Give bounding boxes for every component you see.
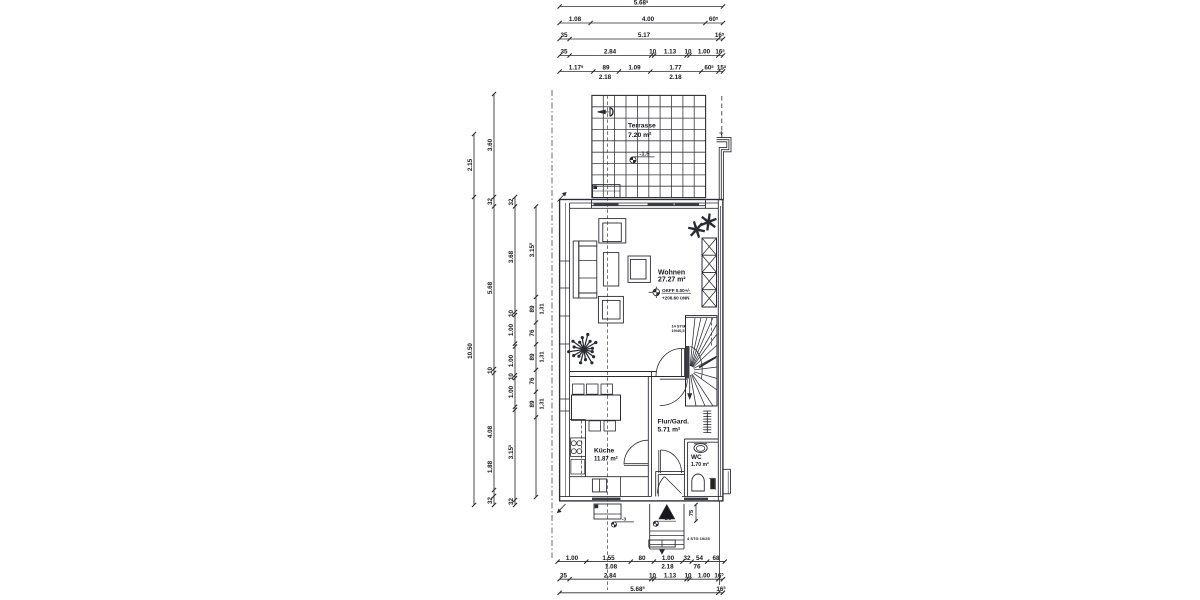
svg-text:2.18: 2.18 bbox=[599, 74, 612, 81]
svg-text:1,31: 1,31 bbox=[540, 399, 546, 410]
svg-text:10: 10 bbox=[684, 572, 692, 579]
svg-text:10: 10 bbox=[508, 373, 515, 381]
svg-text:32: 32 bbox=[508, 198, 515, 206]
svg-text:Küche: Küche bbox=[594, 447, 614, 454]
svg-text:2.18: 2.18 bbox=[669, 74, 682, 81]
svg-text:89: 89 bbox=[529, 305, 536, 313]
svg-text:5.68: 5.68 bbox=[487, 281, 494, 294]
svg-text:10: 10 bbox=[487, 367, 494, 375]
svg-text:1,31: 1,31 bbox=[540, 304, 546, 315]
svg-text:68: 68 bbox=[712, 555, 720, 562]
svg-text:1.00: 1.00 bbox=[698, 572, 711, 579]
svg-text:2.18: 2.18 bbox=[661, 564, 674, 571]
svg-text:89: 89 bbox=[529, 353, 536, 361]
svg-text:1.13: 1.13 bbox=[664, 49, 677, 56]
svg-text:2.84: 2.84 bbox=[604, 572, 617, 579]
svg-text:7.20 m²: 7.20 m² bbox=[628, 132, 652, 139]
svg-text:1.55: 1.55 bbox=[602, 555, 615, 562]
svg-text:76: 76 bbox=[529, 377, 536, 385]
svg-text:1.08: 1.08 bbox=[605, 564, 618, 571]
svg-text:3.68: 3.68 bbox=[508, 250, 515, 263]
svg-text:2.15: 2.15 bbox=[467, 158, 474, 171]
svg-text:35: 35 bbox=[560, 572, 568, 579]
svg-text:1.77: 1.77 bbox=[669, 65, 682, 72]
svg-text:Flur/Gard.: Flur/Gard. bbox=[658, 419, 690, 426]
svg-text:11.87 m²: 11.87 m² bbox=[594, 456, 618, 463]
svg-text:35: 35 bbox=[560, 49, 568, 56]
svg-text:1.13: 1.13 bbox=[664, 572, 677, 579]
svg-text:1.00: 1.00 bbox=[508, 323, 515, 336]
svg-text:Terrasse: Terrasse bbox=[628, 123, 656, 130]
svg-text:19/40,5: 19/40,5 bbox=[672, 328, 686, 333]
svg-text:1,31: 1,31 bbox=[540, 352, 546, 363]
svg-text:1.09: 1.09 bbox=[628, 65, 641, 72]
svg-text:10: 10 bbox=[508, 310, 515, 318]
svg-text:76: 76 bbox=[693, 564, 701, 571]
svg-text:32: 32 bbox=[683, 555, 691, 562]
svg-text:1.00: 1.00 bbox=[508, 354, 515, 367]
svg-text:32: 32 bbox=[487, 198, 494, 206]
svg-text:4.00: 4.00 bbox=[642, 16, 655, 23]
svg-text:54: 54 bbox=[696, 555, 704, 562]
svg-text:27.27 m²: 27.27 m² bbox=[658, 277, 686, 284]
svg-text:75: 75 bbox=[689, 509, 695, 516]
svg-text:10: 10 bbox=[649, 49, 657, 56]
svg-text:-1.5: -1.5 bbox=[640, 151, 651, 157]
svg-text:5.71 m²: 5.71 m² bbox=[658, 427, 682, 434]
svg-text:-3: -3 bbox=[622, 517, 627, 523]
svg-text:WC: WC bbox=[691, 454, 702, 461]
svg-text:4 STG 19/25: 4 STG 19/25 bbox=[687, 536, 710, 541]
svg-text:-1.5: -1.5 bbox=[663, 516, 672, 522]
svg-text:5.17: 5.17 bbox=[638, 32, 651, 39]
svg-text:2.84: 2.84 bbox=[604, 49, 617, 56]
svg-text:35: 35 bbox=[560, 32, 568, 39]
svg-text:1.00: 1.00 bbox=[566, 555, 579, 562]
svg-text:1.00: 1.00 bbox=[508, 385, 515, 398]
svg-text:1.70 m²: 1.70 m² bbox=[691, 462, 709, 468]
svg-text:+206.60 üNN: +206.60 üNN bbox=[662, 296, 690, 301]
svg-text:89: 89 bbox=[529, 400, 536, 408]
svg-text:1.88: 1.88 bbox=[487, 460, 494, 473]
svg-text:32: 32 bbox=[487, 497, 494, 505]
svg-text:Wohnen: Wohnen bbox=[658, 269, 685, 276]
svg-text:4.08: 4.08 bbox=[487, 425, 494, 438]
svg-text:89: 89 bbox=[602, 65, 610, 72]
svg-text:3.60: 3.60 bbox=[487, 138, 494, 151]
svg-text:10: 10 bbox=[684, 49, 692, 56]
svg-text:76: 76 bbox=[529, 329, 536, 337]
svg-text:1.00: 1.00 bbox=[698, 49, 711, 56]
svg-text:1.08: 1.08 bbox=[569, 16, 582, 23]
svg-text:10: 10 bbox=[649, 572, 657, 579]
svg-text:32: 32 bbox=[508, 498, 515, 506]
svg-text:80: 80 bbox=[638, 555, 646, 562]
svg-text:1.00: 1.00 bbox=[662, 555, 675, 562]
svg-text:10.50: 10.50 bbox=[467, 343, 474, 359]
svg-text:OKFF 0.00+/-: OKFF 0.00+/- bbox=[662, 288, 691, 293]
